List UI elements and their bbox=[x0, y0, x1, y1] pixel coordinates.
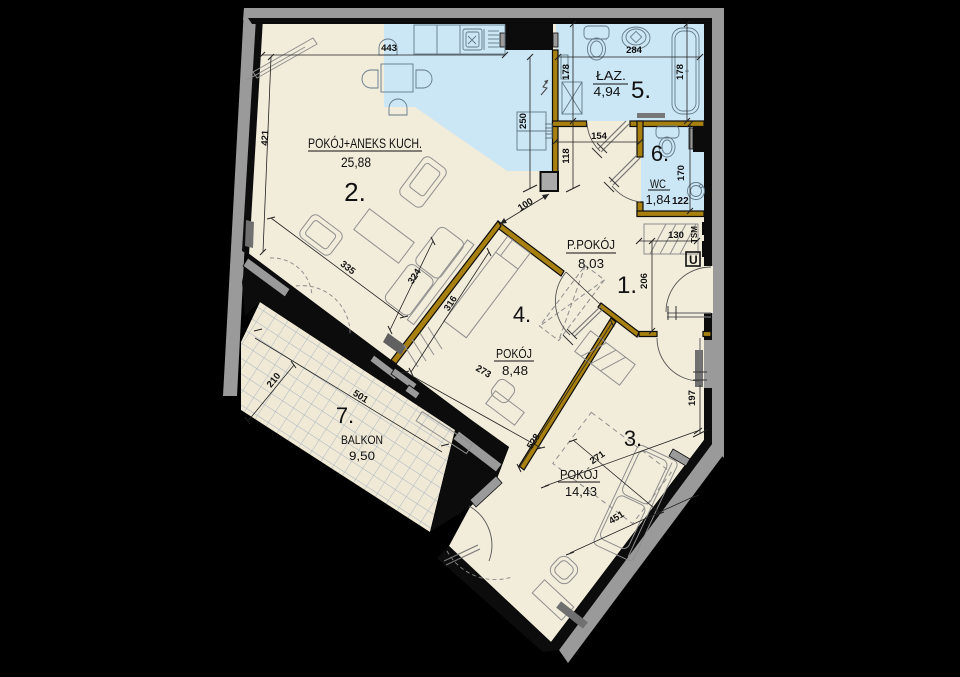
svg-text:1.: 1. bbox=[617, 272, 637, 299]
svg-text:284: 284 bbox=[626, 45, 643, 56]
svg-text:9,50: 9,50 bbox=[349, 449, 375, 463]
svg-text:154: 154 bbox=[591, 131, 608, 142]
svg-text:14,43: 14,43 bbox=[565, 484, 597, 499]
svg-text:U: U bbox=[689, 253, 698, 267]
svg-text:5.: 5. bbox=[631, 77, 651, 104]
svg-text:ŁAZ.: ŁAZ. bbox=[596, 68, 626, 83]
svg-text:7.: 7. bbox=[336, 403, 354, 428]
svg-text:P.POKÓJ: P.POKÓJ bbox=[567, 237, 615, 252]
svg-text:130: 130 bbox=[668, 230, 684, 241]
svg-text:178: 178 bbox=[675, 64, 686, 80]
svg-text:250: 250 bbox=[518, 113, 529, 129]
svg-text:BALKON: BALKON bbox=[341, 433, 383, 447]
svg-text:421: 421 bbox=[260, 129, 272, 146]
svg-text:25,88: 25,88 bbox=[341, 154, 371, 170]
svg-text:6.: 6. bbox=[651, 141, 669, 166]
svg-text:3.: 3. bbox=[624, 426, 642, 451]
svg-text:206: 206 bbox=[639, 273, 650, 289]
svg-text:POKÓJ: POKÓJ bbox=[496, 346, 532, 361]
svg-text:118: 118 bbox=[561, 148, 572, 163]
svg-text:4.: 4. bbox=[513, 302, 531, 327]
svg-text:178: 178 bbox=[561, 64, 572, 80]
svg-text:4,94: 4,94 bbox=[594, 84, 621, 99]
svg-text:2.: 2. bbox=[344, 177, 366, 207]
svg-text:122: 122 bbox=[672, 196, 689, 207]
svg-text:197: 197 bbox=[687, 390, 698, 406]
svg-text:POKÓJ+ANEKS KUCH.: POKÓJ+ANEKS KUCH. bbox=[308, 135, 422, 151]
svg-text:170: 170 bbox=[676, 165, 687, 181]
svg-text:8,03: 8,03 bbox=[578, 256, 604, 271]
svg-text:TSM: TSM bbox=[690, 226, 699, 243]
svg-text:443: 443 bbox=[381, 43, 397, 54]
svg-text:WC: WC bbox=[650, 177, 666, 191]
svg-text:8,48: 8,48 bbox=[502, 363, 528, 378]
svg-text:1,84: 1,84 bbox=[646, 192, 671, 207]
